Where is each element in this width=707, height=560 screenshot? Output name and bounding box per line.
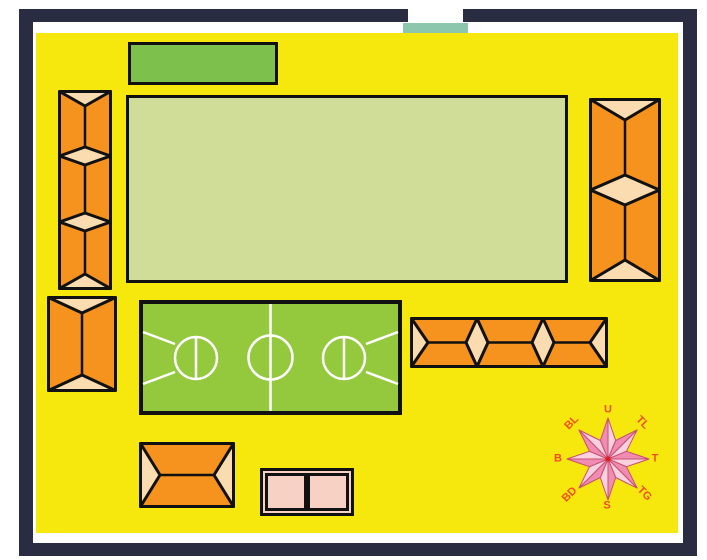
annex-cell xyxy=(307,473,349,511)
annex-cell xyxy=(265,473,307,511)
wall-bottom xyxy=(19,543,697,556)
building-row-horizontal xyxy=(410,317,608,368)
open-annex xyxy=(260,468,354,516)
compass-label-east: T xyxy=(652,454,659,465)
basketball-court xyxy=(139,300,402,415)
building-left-small xyxy=(47,296,117,392)
hall-building xyxy=(128,42,278,85)
site-plan-map: U TL T TG S BD B BL xyxy=(0,0,707,560)
compass-center-dot xyxy=(606,457,611,462)
wall-top-left-segment xyxy=(19,9,408,22)
compass-label-south: S xyxy=(603,501,610,512)
building-left-column xyxy=(58,90,112,290)
wall-right xyxy=(683,9,697,556)
compass-label-west: B xyxy=(554,454,562,465)
building-bottom-left xyxy=(139,442,235,508)
sports-field xyxy=(126,95,568,283)
compass-label-north: U xyxy=(604,405,612,416)
wall-left xyxy=(19,9,33,556)
wall-top-right-segment xyxy=(463,9,697,22)
building-right-column xyxy=(589,98,661,282)
